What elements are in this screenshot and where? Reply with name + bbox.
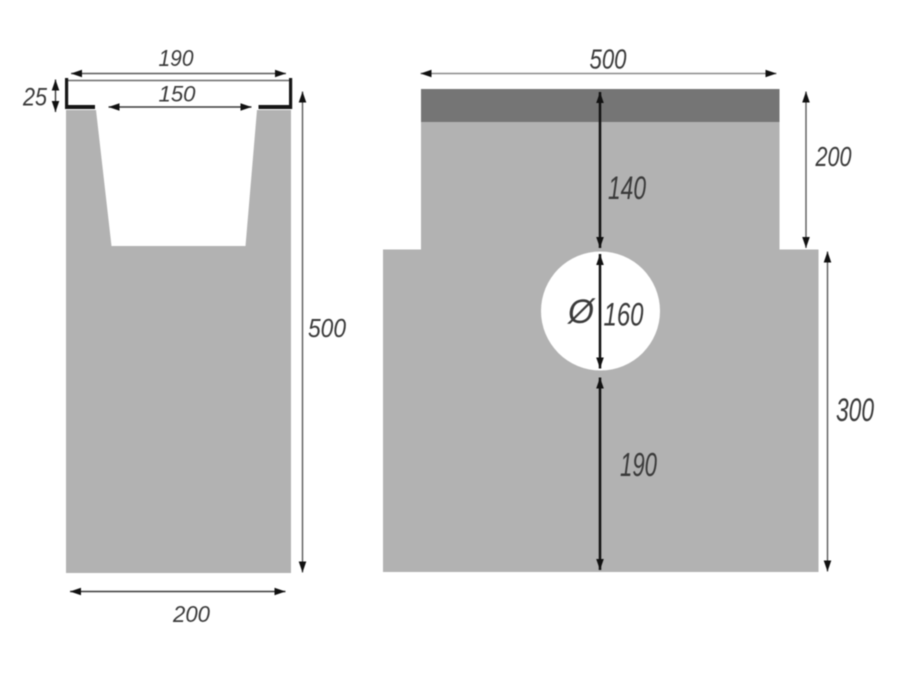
- svg-text:190: 190: [159, 45, 194, 71]
- svg-text:140: 140: [608, 170, 646, 206]
- svg-text:300: 300: [836, 392, 874, 428]
- svg-text:150: 150: [159, 82, 197, 107]
- svg-text:160: 160: [604, 297, 644, 333]
- svg-text:200: 200: [172, 601, 210, 627]
- svg-text:200: 200: [815, 141, 852, 172]
- svg-text:500: 500: [308, 315, 346, 343]
- svg-text:190: 190: [620, 446, 657, 483]
- svg-text:500: 500: [590, 44, 627, 75]
- svg-text:25: 25: [22, 84, 47, 112]
- svg-text:Ø: Ø: [567, 293, 596, 331]
